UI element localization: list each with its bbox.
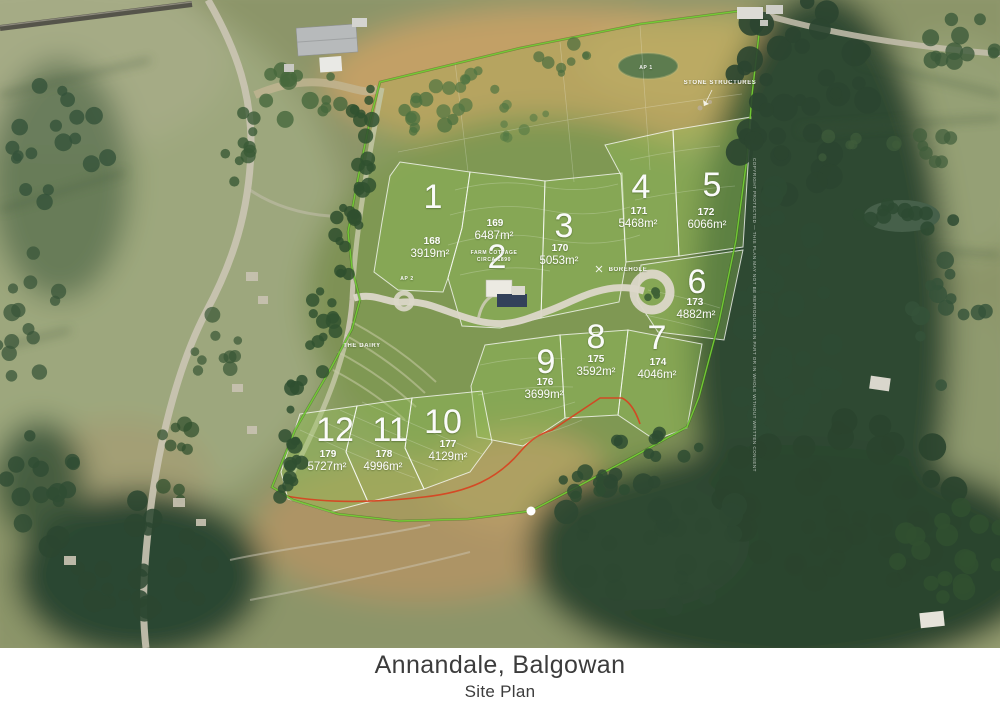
- tree-canopy: [302, 92, 319, 109]
- tree-canopy: [936, 590, 950, 604]
- tree-canopy: [958, 551, 974, 567]
- tree-canopy: [759, 103, 774, 118]
- tree-canopy: [889, 553, 906, 570]
- tree-canopy: [936, 251, 954, 269]
- tree-canopy: [32, 78, 48, 94]
- tree-canopy: [19, 183, 32, 196]
- tree-canopy: [806, 255, 821, 270]
- lot-10-number: 10: [424, 403, 462, 441]
- tree-canopy: [326, 72, 335, 81]
- tree-canopy: [53, 495, 65, 507]
- tree-canopy: [800, 222, 824, 246]
- tree-canopy: [57, 86, 67, 96]
- tree-canopy: [336, 269, 345, 278]
- southeast-house: [919, 611, 944, 628]
- tree-canopy: [877, 205, 889, 217]
- tree-canopy: [321, 102, 332, 113]
- tree-canopy: [818, 153, 826, 161]
- survey-marker-dot: [527, 507, 536, 516]
- tree-canopy: [601, 535, 617, 551]
- tree-canopy: [69, 133, 81, 145]
- tree-canopy: [728, 445, 752, 469]
- tree-canopy: [290, 381, 304, 395]
- tree-canopy: [330, 211, 343, 224]
- tree-canopy: [886, 136, 901, 151]
- lot-6-number: 6: [688, 263, 707, 301]
- tree-canopy: [248, 127, 257, 136]
- lot-5-number: 5: [703, 166, 722, 204]
- tree-canopy: [951, 27, 969, 45]
- tree-canopy: [842, 39, 869, 66]
- tree-canopy: [582, 51, 591, 60]
- tree-canopy: [503, 133, 513, 143]
- lot-5-area: 6066m²: [688, 219, 727, 231]
- the-dairy-label: THE DAIRY: [343, 343, 381, 349]
- tree-canopy: [398, 104, 410, 116]
- lot-9-number: 9: [537, 343, 556, 381]
- tree-canopy: [674, 571, 688, 585]
- tree-canopy: [14, 514, 33, 533]
- lot-4-number: 4: [632, 168, 651, 206]
- tree-canopy: [735, 291, 751, 307]
- tree-canopy: [756, 293, 775, 312]
- tree-canopy: [229, 176, 239, 186]
- tree-canopy: [822, 369, 843, 390]
- stone-structures-label: STONE STRUCTURES: [684, 80, 757, 86]
- tree-canopy: [11, 119, 28, 136]
- tree-canopy: [278, 484, 287, 493]
- caption-block: Annandale, Balgowan Site Plan: [0, 648, 1000, 706]
- tree-canopy: [136, 595, 160, 619]
- lot-12-area: 5727m²: [308, 461, 347, 473]
- tree-canopy: [770, 94, 797, 121]
- tree-canopy: [744, 131, 764, 151]
- outbuilding: [352, 18, 367, 27]
- tree-canopy: [935, 379, 947, 391]
- tree-canopy: [974, 13, 986, 25]
- tree-canopy: [922, 29, 939, 46]
- tree-canopy: [83, 590, 105, 612]
- tree-canopy: [911, 541, 930, 560]
- tree-canopy: [574, 565, 598, 589]
- tree-canopy: [648, 497, 672, 521]
- tree-canopy: [102, 583, 114, 595]
- lot-3-erf: 170: [552, 243, 569, 254]
- tree-canopy: [832, 408, 858, 434]
- tree-canopy: [281, 74, 297, 90]
- tree-canopy: [737, 46, 763, 72]
- tree-canopy: [863, 212, 879, 228]
- tree-canopy: [283, 457, 297, 471]
- lot-7-erf: 174: [650, 357, 667, 368]
- lot-3-area: 5053m²: [540, 255, 579, 267]
- lot-5-erf: 172: [698, 207, 715, 218]
- tree-canopy: [619, 484, 630, 495]
- tree-canopy: [938, 574, 950, 586]
- tree-canopy: [936, 524, 958, 546]
- tree-canopy: [364, 112, 379, 127]
- borehole-label: BOREHOLE: [609, 267, 648, 273]
- tree-canopy: [358, 128, 373, 143]
- tree-canopy: [33, 461, 49, 477]
- tree-canopy: [46, 526, 69, 549]
- tree-canopy: [137, 564, 150, 577]
- tree-canopy: [157, 429, 168, 440]
- tree-canopy: [197, 355, 207, 365]
- tree-canopy: [309, 309, 318, 318]
- tree-canopy: [919, 207, 933, 221]
- lot-3-number: 3: [555, 207, 574, 245]
- tree-canopy: [354, 221, 363, 230]
- tree-canopy: [283, 474, 294, 485]
- tree-canopy: [678, 450, 691, 463]
- tree-canopy: [201, 556, 218, 573]
- tree-canopy: [821, 130, 835, 144]
- tree-canopy: [502, 100, 512, 110]
- tree-canopy: [235, 156, 244, 165]
- tree-canopy: [809, 18, 831, 40]
- tree-canopy: [519, 124, 530, 135]
- tree-canopy: [50, 296, 60, 306]
- tree-canopy: [354, 182, 364, 192]
- tree-canopy: [922, 470, 940, 488]
- tree-canopy: [156, 479, 171, 494]
- tree-canopy: [437, 118, 452, 133]
- tree-canopy: [694, 443, 704, 453]
- tree-canopy: [593, 485, 605, 497]
- copyright-vertical-text: COPYRIGHT PROTECTED — THIS PLAN MAY NOT …: [752, 158, 757, 472]
- white-barn: [319, 56, 342, 72]
- lot-1-number: 1: [424, 178, 443, 216]
- tree-canopy: [597, 469, 607, 479]
- tree-canopy: [558, 70, 565, 77]
- tree-canopy: [83, 155, 100, 172]
- tree-canopy: [167, 557, 187, 577]
- tree-canopy: [410, 96, 422, 108]
- tree-canopy: [944, 131, 957, 144]
- tree-canopy: [234, 336, 243, 345]
- tree-canopy: [567, 37, 581, 51]
- tree-canopy: [55, 133, 73, 151]
- tree-canopy: [554, 500, 578, 524]
- tree-canopy: [542, 111, 549, 118]
- tree-canopy: [500, 120, 508, 128]
- tree-canopy: [127, 490, 148, 511]
- tree-canopy: [13, 150, 24, 161]
- tree-canopy: [801, 97, 820, 116]
- tree-canopy: [920, 221, 934, 235]
- tree-canopy: [287, 438, 303, 454]
- tree-canopy: [24, 275, 38, 289]
- tree-canopy: [177, 417, 192, 432]
- tree-canopy: [929, 155, 942, 168]
- tree-canopy: [817, 286, 830, 299]
- tree-canopy: [768, 355, 792, 379]
- tree-canopy: [707, 560, 732, 585]
- tree-canopy: [822, 558, 841, 577]
- north-shed-2: [766, 5, 783, 14]
- tree-canopy: [761, 185, 784, 208]
- tree-canopy: [175, 582, 195, 602]
- tree-canopy: [36, 194, 52, 210]
- tree-canopy: [881, 432, 904, 455]
- tree-canopy: [801, 520, 815, 534]
- page-title: Annandale, Balgowan: [375, 652, 626, 680]
- tree-canopy: [970, 515, 989, 534]
- lot-2-area: 6487m²: [475, 230, 514, 242]
- tree-canopy: [277, 111, 294, 128]
- tree-canopy: [681, 498, 698, 515]
- tree-canopy: [490, 85, 499, 94]
- tree-canopy: [770, 211, 785, 226]
- tree-canopy: [945, 42, 963, 60]
- tree-canopy: [23, 323, 35, 335]
- tree-canopy: [339, 241, 351, 253]
- tree-canopy: [305, 340, 315, 350]
- tree-canopy: [6, 370, 18, 382]
- lot-11-erf: 178: [376, 449, 393, 460]
- tree-canopy: [8, 456, 25, 473]
- tree-canopy: [913, 128, 927, 142]
- tree-canopy: [731, 386, 752, 407]
- tree-canopy: [699, 588, 716, 605]
- tree-canopy: [919, 433, 947, 461]
- tree-canopy: [237, 107, 249, 119]
- tree-canopy: [319, 333, 328, 342]
- tree-canopy: [33, 486, 50, 503]
- tree-canopy: [339, 204, 347, 212]
- tree-canopy: [793, 435, 816, 458]
- tree-canopy: [182, 444, 193, 455]
- tree-canopy: [118, 589, 130, 601]
- tree-canopy: [951, 498, 970, 517]
- tree-canopy: [191, 536, 206, 551]
- tree-canopy: [852, 511, 868, 527]
- tree-canopy: [900, 481, 918, 499]
- tree-canopy: [897, 203, 912, 218]
- lot-11-number: 11: [372, 411, 407, 449]
- tree-canopy: [50, 120, 62, 132]
- tree-canopy: [821, 334, 842, 355]
- farm-cottage-date-label: CIRCA 1890: [477, 257, 511, 263]
- tree-canopy: [930, 51, 941, 62]
- tree-canopy: [929, 285, 947, 303]
- tree-canopy: [803, 124, 822, 143]
- lot-9-erf: 176: [537, 377, 554, 388]
- tree-canopy: [804, 387, 822, 405]
- site-plan-map: 11683919m²21696487m²31705053m²41715468m²…: [0, 0, 1000, 648]
- north-shed-3: [760, 20, 768, 26]
- tree-canopy: [953, 574, 973, 594]
- tree-canopy: [221, 149, 231, 159]
- tree-canopy: [24, 430, 35, 441]
- tree-canopy: [78, 572, 96, 590]
- tree-canopy: [259, 94, 273, 108]
- tree-canopy: [12, 487, 31, 506]
- tree-canopy: [854, 87, 881, 114]
- outbuilding-2: [284, 64, 294, 72]
- tree-canopy: [644, 294, 652, 302]
- tree-canopy: [346, 104, 360, 118]
- lot-7-number: 7: [648, 319, 667, 357]
- tree-canopy: [795, 351, 811, 367]
- tree-canopy: [643, 530, 658, 545]
- tree-canopy: [958, 309, 970, 321]
- tree-canopy: [316, 287, 324, 295]
- tree-canopy: [455, 82, 466, 93]
- tree-canopy: [778, 253, 792, 267]
- lot-2-erf: 169: [487, 218, 504, 229]
- lot-12-erf: 179: [320, 449, 337, 460]
- tree-canopy: [306, 293, 319, 306]
- tree-canopy: [769, 127, 786, 144]
- tree-canopy: [173, 484, 185, 496]
- tree-canopy: [141, 522, 155, 536]
- aerial-photo: 11683919m²21696487m²31705053m²41715468m²…: [0, 0, 1000, 648]
- tree-canopy: [895, 522, 917, 544]
- tree-canopy: [205, 307, 221, 323]
- page-subtitle: Site Plan: [465, 682, 536, 702]
- tree-canopy: [99, 149, 116, 166]
- tree-canopy: [668, 519, 686, 537]
- tree-canopy: [69, 110, 84, 125]
- tree-canopy: [724, 525, 742, 543]
- lot-8-number: 8: [587, 318, 606, 356]
- tree-canopy: [665, 598, 683, 616]
- lot-10-area: 4129m²: [429, 451, 468, 463]
- tree-canopy: [429, 79, 443, 93]
- tree-canopy: [243, 141, 255, 153]
- tree-canopy: [327, 298, 336, 307]
- lot-7-area: 4046m²: [638, 369, 677, 381]
- tree-canopy: [605, 580, 626, 601]
- tree-canopy: [210, 331, 220, 341]
- tree-canopy: [678, 582, 694, 598]
- tree-canopy: [760, 73, 773, 86]
- tree-canopy: [530, 114, 538, 122]
- tree-canopy: [823, 495, 841, 513]
- tree-canopy: [905, 301, 920, 316]
- tree-canopy: [366, 85, 375, 94]
- tree-canopy: [287, 406, 295, 414]
- tree-canopy: [533, 51, 544, 62]
- tree-canopy: [870, 513, 892, 535]
- tree-canopy: [945, 13, 958, 26]
- tree-canopy: [774, 145, 789, 160]
- tree-canopy: [785, 27, 801, 43]
- tree-canopy: [264, 68, 277, 81]
- tree-canopy: [651, 287, 659, 295]
- tree-canopy: [633, 473, 654, 494]
- lot-6-area: 4882m²: [677, 309, 716, 321]
- lot-1-area: 3919m²: [411, 248, 450, 260]
- farm-cottage-label: FARM COTTAGE: [471, 250, 518, 256]
- east-house: [869, 376, 891, 392]
- tree-canopy: [409, 127, 418, 136]
- tree-canopy: [8, 283, 18, 293]
- tree-canopy: [436, 104, 450, 118]
- tree-canopy: [978, 304, 993, 319]
- tree-canopy: [95, 561, 112, 578]
- tree-canopy: [329, 324, 343, 338]
- tree-canopy: [11, 303, 25, 317]
- tree-canopy: [229, 350, 241, 362]
- tree-canopy: [85, 107, 103, 125]
- lot-8-area: 3592m²: [577, 366, 616, 378]
- tree-canopy: [452, 103, 465, 116]
- tree-canopy: [946, 293, 957, 304]
- tree-canopy: [614, 435, 628, 449]
- lot-12-number: 12: [316, 411, 354, 449]
- lot-11-area: 4996m²: [364, 461, 403, 473]
- tree-canopy: [809, 537, 827, 555]
- tree-canopy: [850, 133, 861, 144]
- lot-9-area: 3699m²: [525, 389, 564, 401]
- tree-canopy: [59, 481, 76, 498]
- lot-4-erf: 171: [631, 206, 648, 217]
- tree-canopy: [364, 96, 373, 105]
- lot-1-erf: 168: [424, 236, 441, 247]
- tree-canopy: [191, 347, 200, 356]
- tree-canopy: [915, 331, 926, 342]
- ap-2-label: AP 2: [400, 276, 413, 282]
- tree-canopy: [26, 147, 38, 159]
- tree-canopy: [577, 529, 589, 541]
- tree-canopy: [567, 484, 582, 499]
- north-shed-1: [737, 7, 763, 19]
- tree-canopy: [643, 448, 654, 459]
- tree-canopy: [945, 269, 956, 280]
- tree-canopy: [27, 246, 40, 259]
- tree-canopy: [223, 361, 238, 376]
- tree-canopy: [917, 141, 928, 152]
- tree-canopy: [442, 81, 456, 95]
- tree-canopy: [559, 475, 568, 484]
- tree-canopy: [219, 353, 229, 363]
- tree-canopy: [193, 365, 203, 375]
- tree-canopy: [32, 364, 47, 379]
- tree-canopy: [924, 576, 939, 591]
- tree-canopy: [806, 172, 828, 194]
- tree-canopy: [782, 400, 794, 412]
- tree-canopy: [748, 540, 772, 564]
- tree-canopy: [795, 468, 823, 496]
- tree-canopy: [359, 160, 374, 175]
- tree-canopy: [652, 430, 664, 442]
- tree-canopy: [2, 346, 17, 361]
- tree-canopy: [719, 503, 743, 527]
- tree-canopy: [567, 57, 576, 66]
- lot-4-area: 5468m²: [619, 218, 658, 230]
- tree-canopy: [827, 526, 854, 553]
- tree-canopy: [778, 291, 805, 318]
- tree-canopy: [316, 365, 329, 378]
- tree-canopy: [695, 518, 712, 535]
- tree-canopy: [165, 440, 177, 452]
- tree-canopy: [749, 441, 766, 458]
- tree-canopy: [886, 572, 902, 588]
- lot-6-erf: 173: [687, 297, 704, 308]
- tree-canopy: [333, 97, 347, 111]
- tree-canopy: [947, 214, 959, 226]
- lot-8-erf: 175: [588, 354, 605, 365]
- tree-canopy: [830, 87, 842, 99]
- tree-canopy: [67, 457, 80, 470]
- tree-canopy: [577, 464, 593, 480]
- site-plan-page: 11683919m²21696487m²31705053m²41715468m²…: [0, 0, 1000, 706]
- ap-1-label: AP 1: [639, 65, 652, 71]
- lot-10-erf: 177: [440, 439, 457, 450]
